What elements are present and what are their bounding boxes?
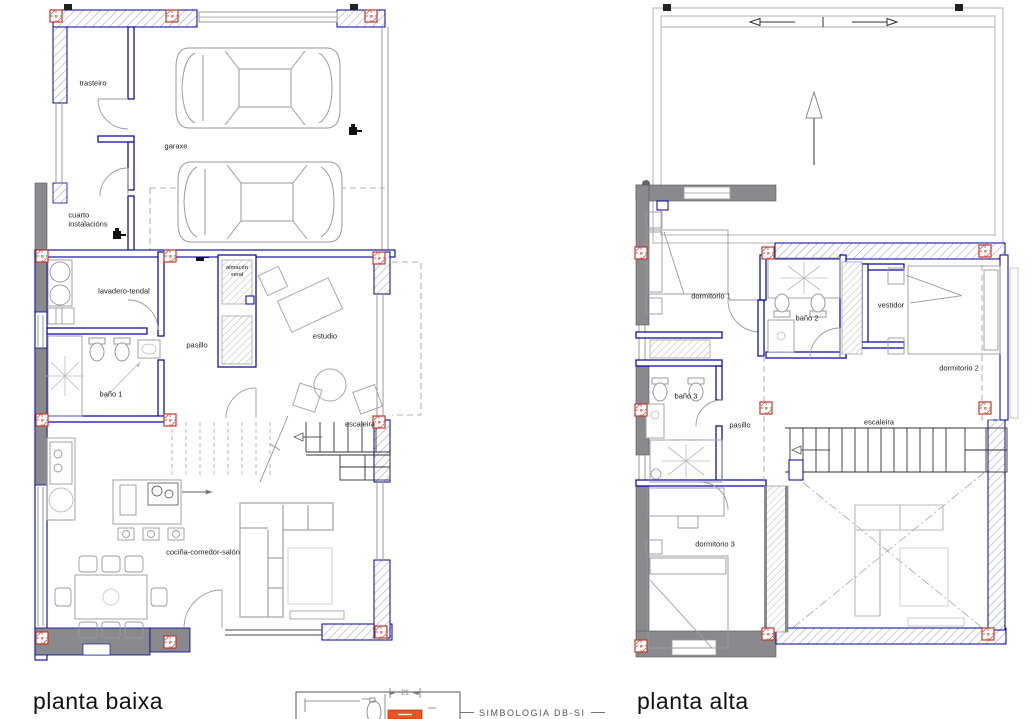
sofa bbox=[240, 503, 333, 617]
tendal-hatch bbox=[650, 340, 710, 358]
extinguisher-icon bbox=[113, 228, 126, 239]
post-icon bbox=[955, 4, 963, 11]
planta-alta-plan bbox=[635, 4, 1018, 657]
interior-walls-alta bbox=[636, 255, 904, 486]
alta-outer-walls bbox=[636, 185, 1018, 657]
garage-doors bbox=[98, 99, 128, 196]
planta-baixa-plan bbox=[35, 4, 421, 660]
dorm2-furniture bbox=[888, 266, 1000, 354]
dining-table bbox=[55, 556, 167, 638]
laundry-fixtures bbox=[48, 260, 74, 324]
car-top-view bbox=[176, 48, 340, 128]
kitchen-fixtures bbox=[47, 438, 212, 524]
double-height-void bbox=[790, 472, 985, 630]
stairs-baixa bbox=[172, 416, 390, 482]
car-top-view bbox=[178, 162, 342, 242]
window-sill bbox=[290, 611, 344, 619]
legend-detail-box bbox=[296, 688, 460, 719]
bathroom1-fixtures bbox=[45, 336, 160, 416]
floor-plan-drawing bbox=[0, 0, 1032, 719]
void-edge-hatch bbox=[764, 460, 803, 632]
roof-terrace bbox=[653, 8, 1003, 243]
wardrobe-hatch bbox=[842, 262, 862, 354]
extinguisher-icon bbox=[349, 124, 362, 135]
kitchen-stools bbox=[118, 528, 184, 540]
trasteiro-partition bbox=[98, 27, 134, 250]
roof-drain-icon bbox=[350, 4, 358, 10]
post-icon bbox=[663, 4, 671, 11]
rug bbox=[288, 548, 332, 604]
dorm3-furniture bbox=[646, 488, 728, 648]
roof-slope-arrows bbox=[750, 17, 897, 165]
roof-drain-icon bbox=[64, 4, 72, 10]
entrance-door bbox=[184, 590, 222, 628]
stairs-alta bbox=[785, 428, 1007, 472]
dorm1-furniture bbox=[646, 212, 760, 332]
bathroom2-fixtures bbox=[768, 258, 840, 358]
lavadero-door bbox=[128, 300, 158, 330]
